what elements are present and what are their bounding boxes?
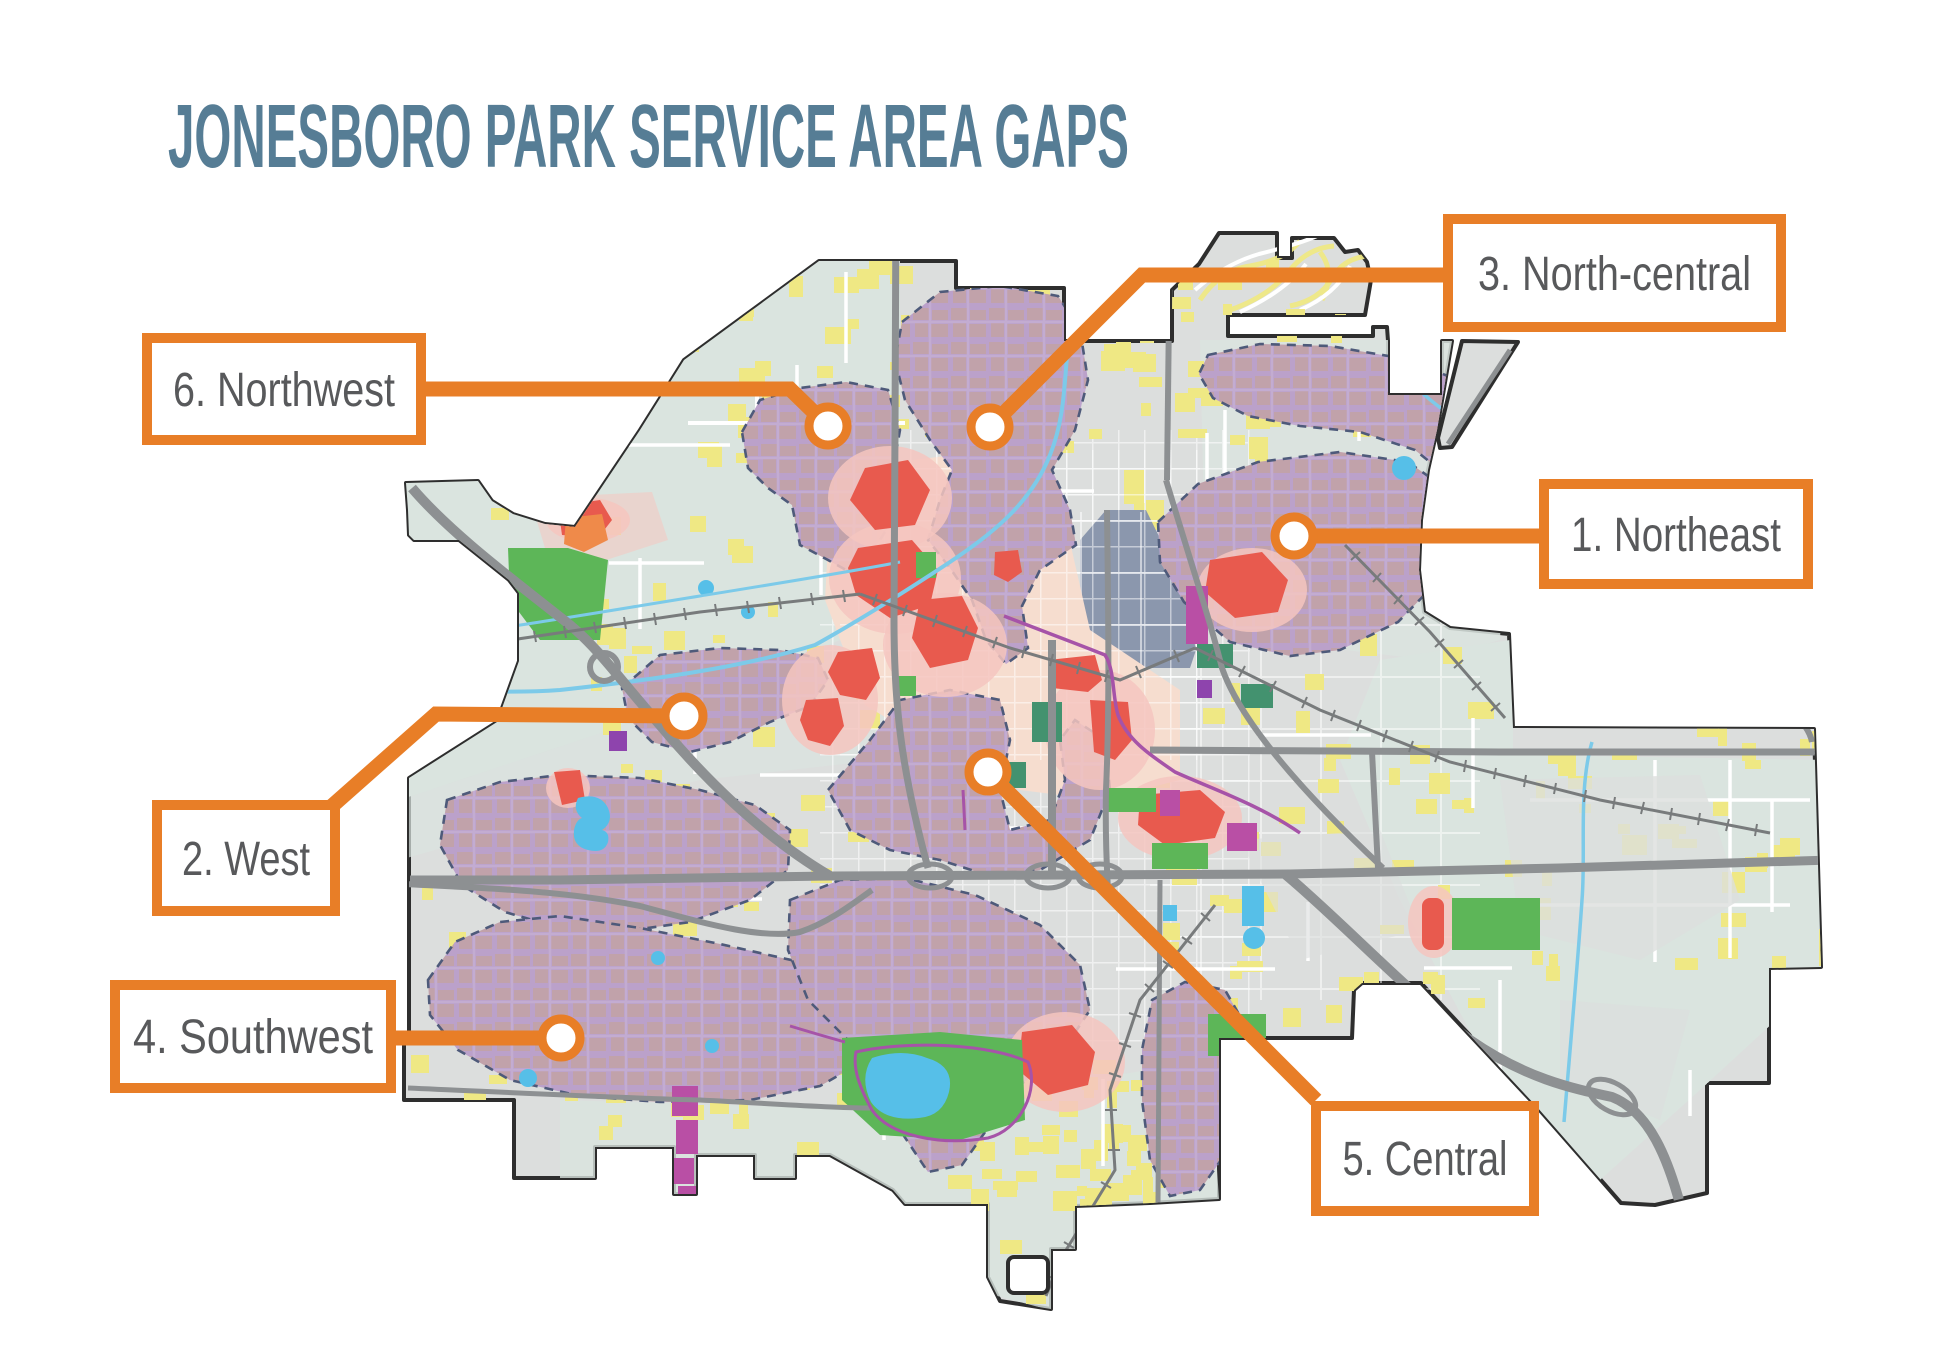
svg-text:6. Northwest: 6. Northwest [173, 364, 395, 417]
svg-text:2. West: 2. West [182, 833, 310, 886]
svg-text:4. Southwest: 4. Southwest [133, 1011, 373, 1064]
svg-text:1. Northeast: 1. Northeast [1571, 509, 1781, 562]
svg-text:5. Central: 5. Central [1343, 1133, 1508, 1186]
svg-text:3. North-central: 3. North-central [1478, 248, 1751, 301]
svg-text:JONESBORO PARK SERVICE AREA GA: JONESBORO PARK SERVICE AREA GAPS [168, 87, 1129, 187]
